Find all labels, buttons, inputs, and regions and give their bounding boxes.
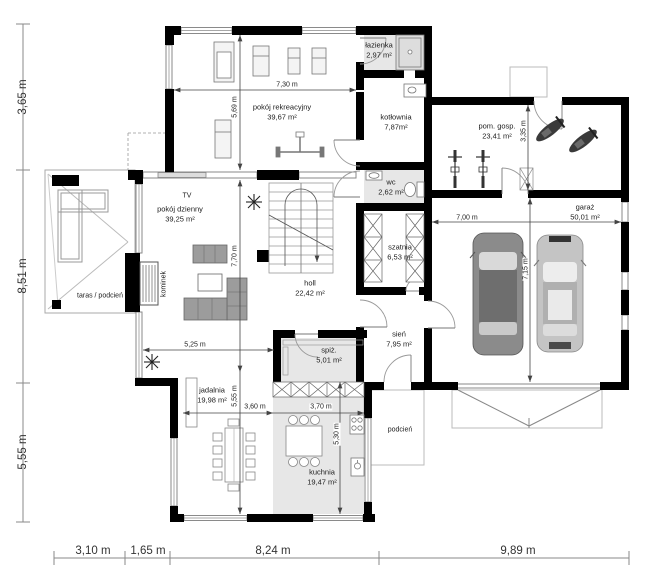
overhang-dashed-line <box>128 133 168 170</box>
plant-1 <box>246 194 262 210</box>
room-area: 19,98 m² <box>197 395 227 405</box>
dim-label-dining-width: 3,60 m <box>243 404 266 411</box>
dim-label-left-3: 5,55 m <box>17 434 29 469</box>
room-name: sień <box>392 329 406 338</box>
garage-doors <box>458 384 600 428</box>
room-name: wc <box>386 177 395 186</box>
boiler-room-sink <box>404 84 426 97</box>
kitchen-cabinets-row <box>273 382 364 397</box>
room-area: 23,41 m² <box>478 131 515 141</box>
terrace-sofa <box>58 190 108 262</box>
tv-label: TV <box>183 193 192 200</box>
room-area: 39,67 m² <box>253 112 311 122</box>
room-label-wc: wc 2,62 m² <box>378 177 403 197</box>
room-area: 19,47 m² <box>307 477 337 487</box>
room-area: 39,25 m² <box>157 214 203 224</box>
room-name: spiż. <box>321 345 336 354</box>
terrace-pillars <box>52 175 79 309</box>
room-name: pom. gosp. <box>478 121 515 130</box>
dim-label-kitchen-height: 5,30 m <box>334 422 341 445</box>
room-label-sien: sień 7,95 m² <box>386 329 411 349</box>
room-label-lazienka: łazienka 2,97 m² <box>365 40 393 60</box>
room-name: garaż <box>576 202 595 211</box>
room-label-garaz: garaż 50,01 m² <box>570 202 600 222</box>
stove <box>350 415 364 434</box>
room-name: pokój dzienny <box>157 204 203 213</box>
terrace-label: taras / podcień <box>77 293 123 300</box>
bicycle-1 <box>448 150 462 188</box>
motorcycle-2 <box>565 125 600 157</box>
dim-label-garage-width: 7,00 m <box>455 215 478 222</box>
room-label-pom-gosp: pom. gosp. 23,41 m² <box>478 121 515 141</box>
dim-label-garage-height: 7,15 m <box>523 257 530 280</box>
room-label-holl: holl 22,42 m² <box>295 278 325 298</box>
dim-label-kitchen-width: 3,70 m <box>309 404 332 411</box>
room-label-kotlownia: kotłownia 7,87m² <box>380 112 411 132</box>
room-label-kuchnia: kuchnia 19,47 m² <box>307 467 337 487</box>
dim-label-bottom-4: 9,89 m <box>500 545 535 557</box>
staircase <box>269 183 333 273</box>
room-area: 7,95 m² <box>386 339 411 349</box>
dim-label-bottom-2: 1,65 m <box>130 545 165 557</box>
fireplace <box>140 262 158 305</box>
dim-label-rec-width: 7,30 m <box>275 82 298 89</box>
room-label-jadalnia: jadalnia 19,98 m² <box>197 385 227 405</box>
dim-label-left-1: 3,65 m <box>17 79 29 114</box>
car-light <box>534 235 586 352</box>
room-label-spiz: spiż. 5,01 m² <box>316 345 341 365</box>
room-name: pokój rekreacyjny <box>253 102 311 111</box>
room-label-szatnia: szatnia 6,53 m² <box>387 242 412 262</box>
kitchen-sink <box>351 458 364 476</box>
floor-plan: pokój rekreacyjny 39,67 m² łazienka 2,97… <box>0 0 660 585</box>
car-dark <box>470 233 526 355</box>
dim-label-rec-height: 5,69 m <box>232 95 239 118</box>
porch-label: podcień <box>388 427 413 434</box>
shower <box>396 35 424 70</box>
room-label-pokoj-rekreacyjny: pokój rekreacyjny 39,67 m² <box>253 102 311 122</box>
room-area: 7,87m² <box>380 122 411 132</box>
dim-label-utility-height: 3,35 m <box>521 119 528 142</box>
room-label-pokoj-dzienny: pokój dzienny 39,25 m² <box>157 204 203 224</box>
bicycle-2 <box>476 150 490 188</box>
dim-label-bottom-1: 3,10 m <box>75 545 110 557</box>
room-area: 5,01 m² <box>316 355 341 365</box>
room-name: kuchnia <box>309 467 335 476</box>
room-name: szatnia <box>388 242 412 251</box>
duct-box <box>520 168 533 190</box>
dim-label-bottom-3: 8,24 m <box>255 545 290 557</box>
plant-2 <box>144 354 160 370</box>
room-area: 2,97 m² <box>365 50 393 60</box>
dim-label-left-2: 8,51 m <box>17 258 29 293</box>
fireplace-label: kominek <box>161 271 168 297</box>
room-area: 22,42 m² <box>295 288 325 298</box>
room-name: kotłownia <box>380 112 411 121</box>
room-area: 50,01 m² <box>570 212 600 222</box>
room-area: 6,53 m² <box>387 252 412 262</box>
room-name: holl <box>304 278 316 287</box>
dim-label-dining-height: 5,55 m <box>232 384 239 407</box>
room-name: jadalnia <box>199 385 225 394</box>
dim-label-living-height: 7,70 m <box>232 244 239 267</box>
dim-label-living-width: 5,25 m <box>183 342 206 349</box>
kitchen-island <box>286 416 322 467</box>
tv-sideboard <box>158 173 206 178</box>
room-area: 2,62 m² <box>378 187 403 197</box>
room-name: łazienka <box>365 40 393 49</box>
